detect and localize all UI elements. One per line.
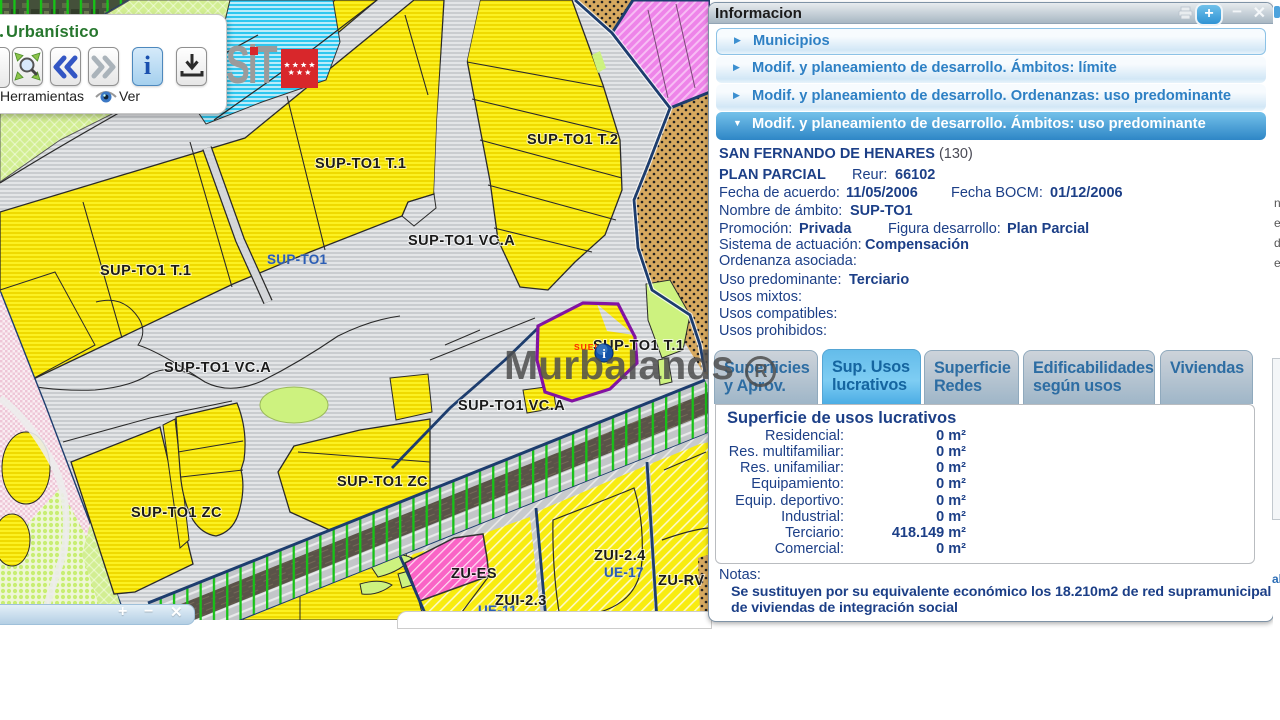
svg-text:SUP-TO1 T.2: SUP-TO1 T.2 — [527, 132, 618, 148]
svg-text:SUP-TO1 VC.A: SUP-TO1 VC.A — [408, 233, 515, 249]
svg-text:SUP-TO1 VC.A: SUP-TO1 VC.A — [164, 360, 271, 376]
svg-text:SUP-TO1 ZC: SUP-TO1 ZC — [131, 505, 222, 521]
svg-text:ZU-RV: ZU-RV — [658, 573, 705, 589]
svg-text:UE-17: UE-17 — [604, 565, 644, 580]
svg-text:SUP-TO1 VC.A: SUP-TO1 VC.A — [458, 398, 565, 414]
svg-text:ZU-ES: ZU-ES — [451, 566, 497, 582]
svg-text:SUP-TO1 T.1: SUP-TO1 T.1 — [315, 156, 406, 172]
svg-text:SUP-TO1: SUP-TO1 — [267, 252, 328, 267]
svg-text:ZUI-2.4: ZUI-2.4 — [594, 548, 646, 564]
svg-text:SUP-TO1 T.1: SUP-TO1 T.1 — [100, 263, 191, 279]
svg-text:SUP-TO1 ZC: SUP-TO1 ZC — [337, 474, 428, 490]
